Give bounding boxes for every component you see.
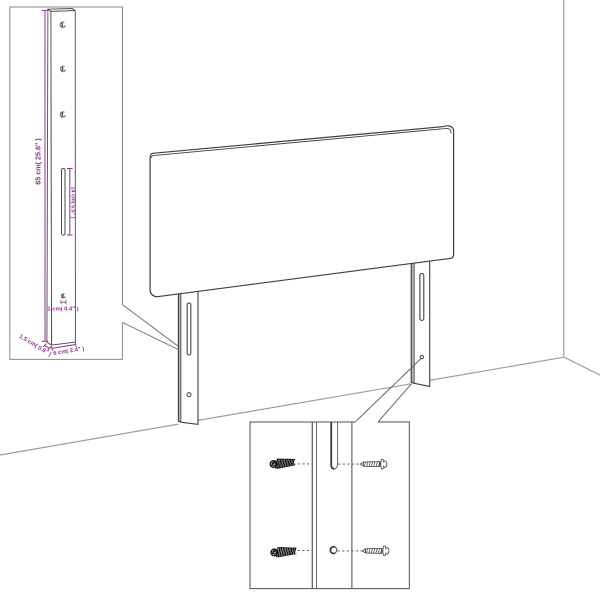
svg-text:65 cm( 25.6″ ): 65 cm( 25.6″ ) [34,138,43,185]
svg-text:1 cm( 0.4″ ): 1 cm( 0.4″ ) [47,307,78,313]
svg-text:14 cm( 5.5″ ): 14 cm( 5.5″ ) [70,187,76,219]
